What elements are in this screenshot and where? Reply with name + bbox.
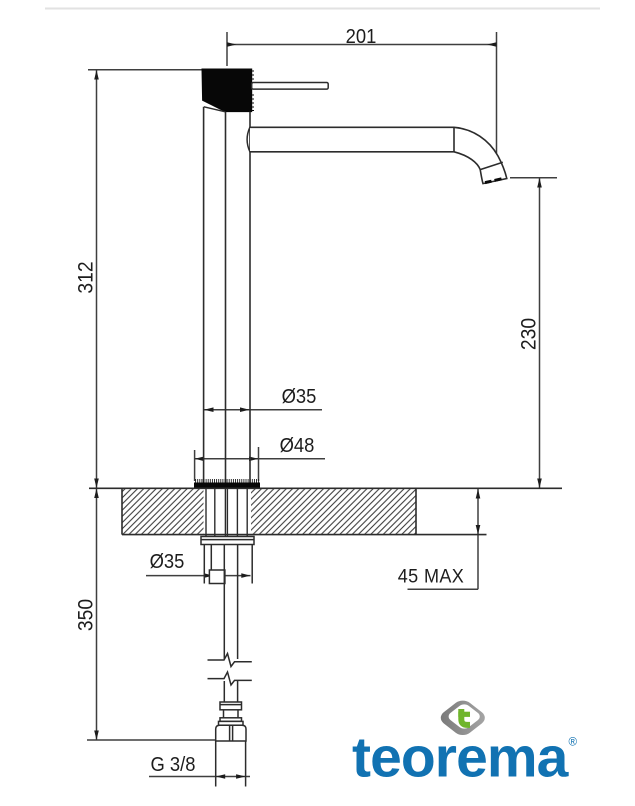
- svg-text:201: 201: [346, 26, 377, 48]
- svg-text:230: 230: [518, 318, 541, 350]
- svg-text:teorema: teorema: [352, 726, 570, 790]
- svg-text:G 3/8: G 3/8: [151, 754, 196, 776]
- svg-text:Ø48: Ø48: [280, 435, 315, 457]
- svg-text:350: 350: [75, 599, 98, 631]
- svg-text:Ø35: Ø35: [150, 551, 185, 573]
- svg-text:Ø35: Ø35: [282, 386, 317, 408]
- svg-text:45 MAX: 45 MAX: [398, 565, 464, 587]
- svg-text:®: ®: [569, 737, 578, 749]
- svg-text:312: 312: [75, 261, 98, 293]
